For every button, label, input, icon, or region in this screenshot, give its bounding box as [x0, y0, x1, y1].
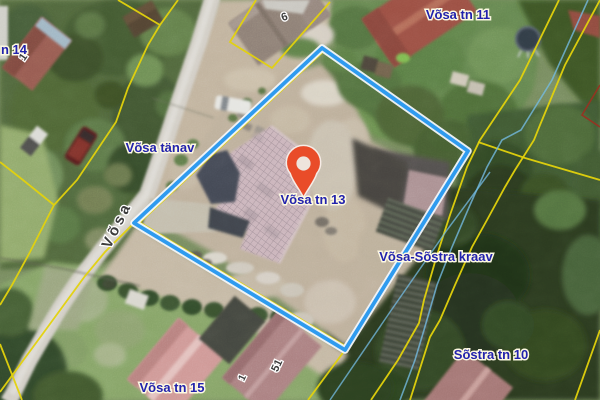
svg-text:Sõstra tn 10: Sõstra tn 10	[454, 347, 528, 362]
svg-text:Võsa tn 15: Võsa tn 15	[139, 380, 204, 395]
svg-text:Võsa-Sõstra kraav: Võsa-Sõstra kraav	[379, 249, 493, 264]
svg-text:Võsa tn 13: Võsa tn 13	[280, 192, 345, 207]
svg-text:Võsa tänav: Võsa tänav	[126, 140, 195, 155]
svg-text:Võsa tn 11: Võsa tn 11	[426, 7, 490, 22]
